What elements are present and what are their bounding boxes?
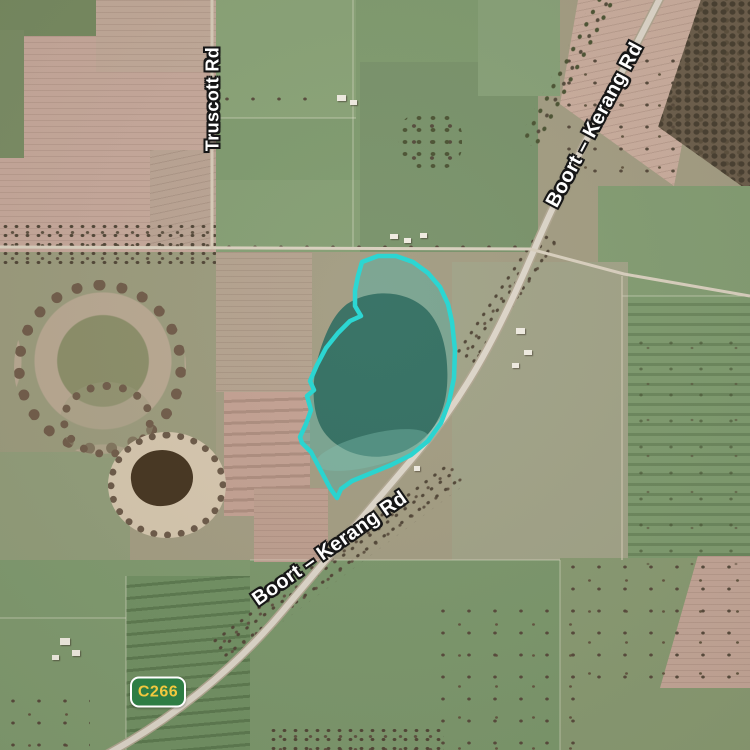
farm-building [60, 638, 70, 645]
satellite-map-canvas[interactable]: Truscott Rd Boort – Kerang Rd Boort – Ke… [0, 0, 750, 750]
farm-building [72, 650, 80, 656]
road-label-truscott: Truscott Rd [203, 47, 224, 151]
map-overlay-svg [0, 0, 750, 750]
farm-building [52, 655, 59, 660]
farm-building [516, 328, 525, 334]
farm-building [390, 234, 398, 239]
farm-building [524, 350, 532, 355]
farm-building [350, 100, 357, 105]
farm-building [414, 466, 420, 471]
lake-region[interactable] [300, 256, 455, 498]
farm-building [404, 238, 411, 243]
route-shield-text: C266 [138, 683, 178, 701]
farm-building [337, 95, 346, 101]
farm-building [420, 233, 427, 238]
route-shield: C266 [130, 677, 186, 708]
farm-building [512, 363, 519, 368]
